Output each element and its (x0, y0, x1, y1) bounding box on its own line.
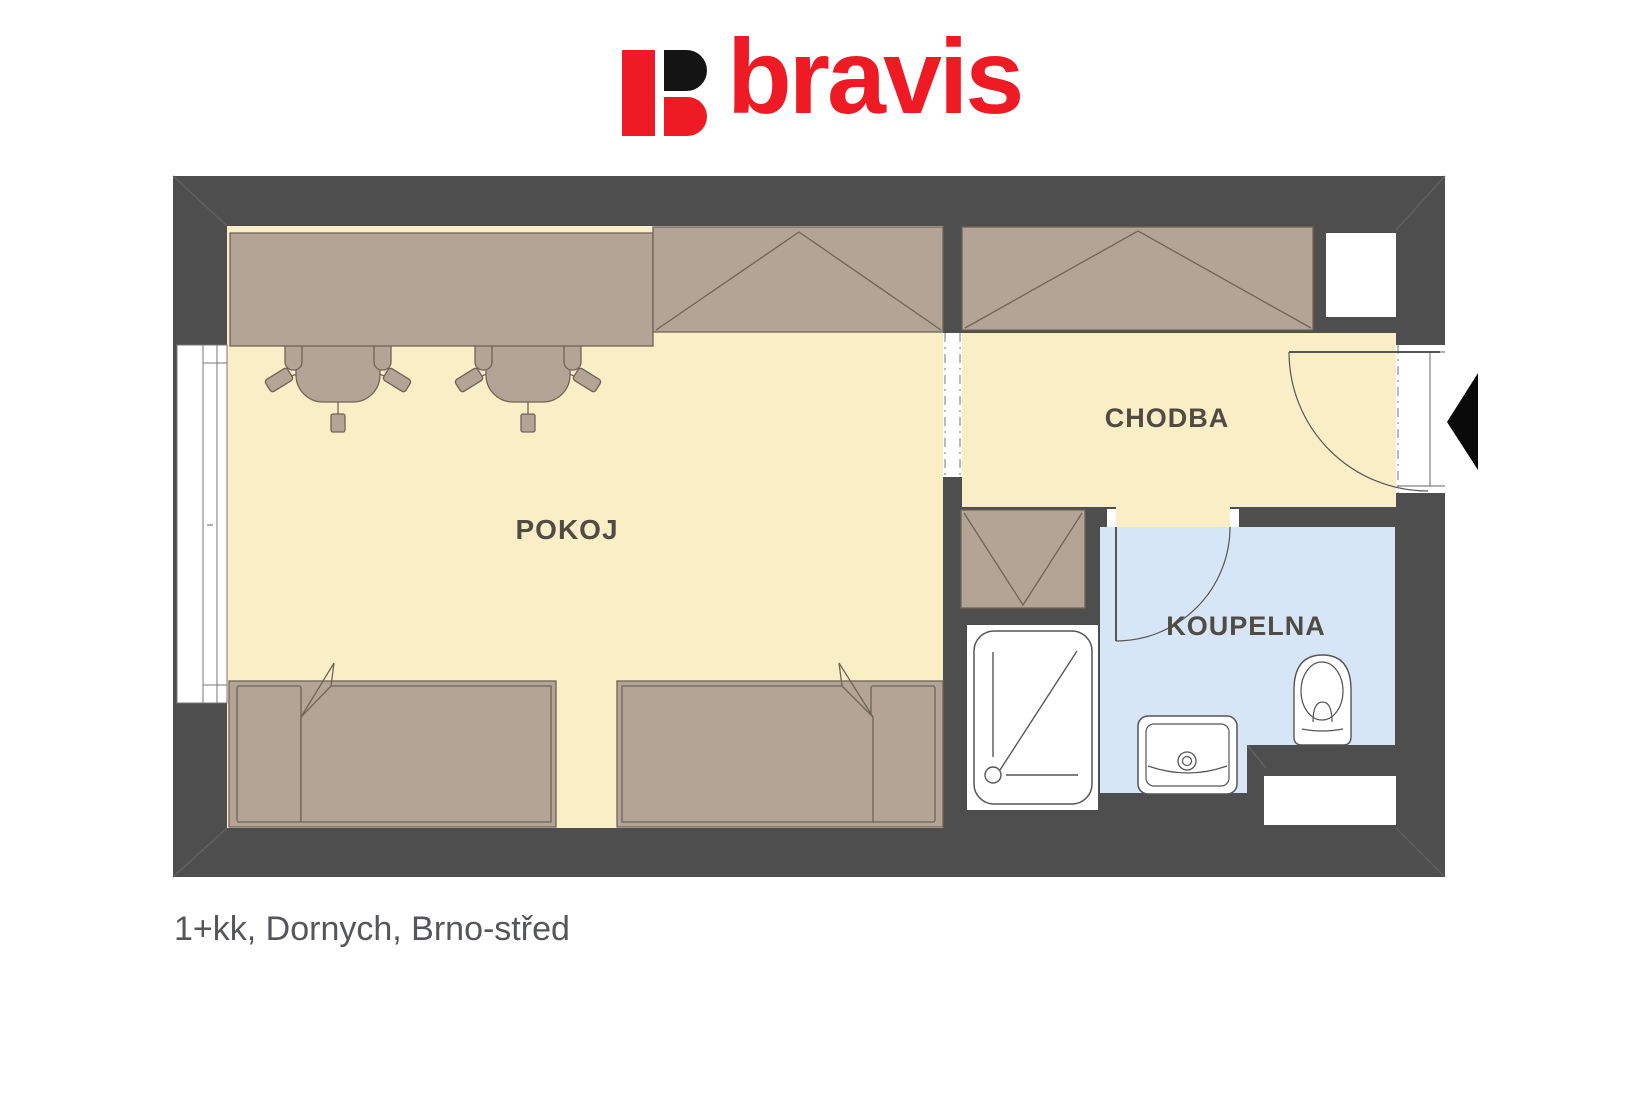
window-left (177, 345, 227, 703)
bed-1 (229, 663, 556, 827)
bathroom-door-jamb (1230, 509, 1239, 528)
wardrobe-chodba (962, 227, 1313, 330)
passage-pokoj-chodba (943, 333, 962, 477)
room-label-koupelna: KOUPELNA (1126, 611, 1366, 642)
listing-caption: 1+kk, Dornych, Brno-střed (174, 910, 570, 949)
entrance-arrow-icon (1447, 373, 1478, 470)
desk (230, 233, 653, 346)
niche-bottom (1264, 776, 1396, 825)
bed-2 (617, 663, 943, 827)
bathroom-doorway-floor (1116, 507, 1230, 527)
washbasin (1138, 716, 1237, 794)
utility-closet (961, 510, 1085, 608)
page: bravis (0, 0, 1649, 1098)
toilet (1294, 655, 1351, 745)
room-label-pokoj: POKOJ (447, 514, 687, 546)
shower (967, 625, 1098, 810)
wardrobe-pokoj (653, 227, 943, 332)
bathroom-door-jamb (1107, 509, 1116, 528)
niche-top-right (1326, 233, 1396, 317)
entrance-door-opening (1396, 345, 1445, 493)
room-label-chodba: CHODBA (1047, 403, 1287, 434)
